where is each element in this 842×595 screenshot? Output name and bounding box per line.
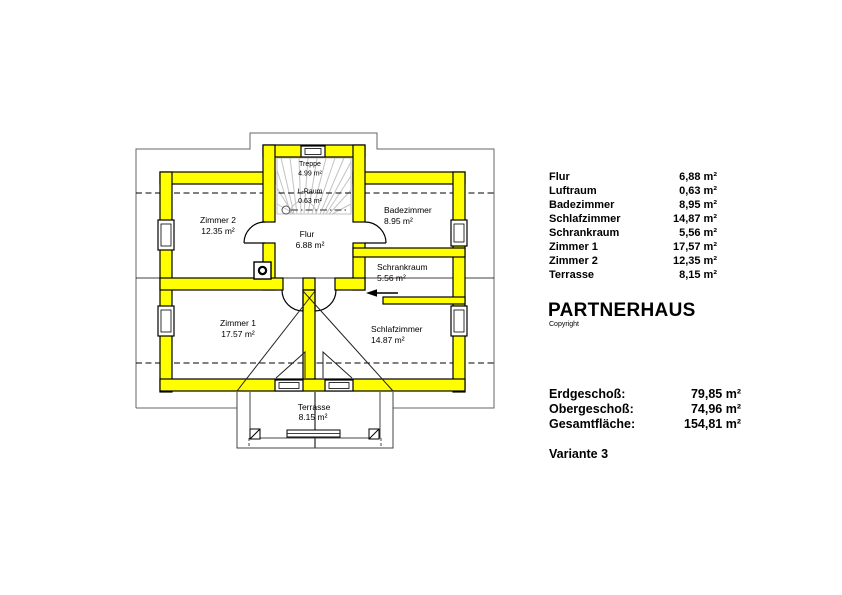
legend-label: Terrasse [549, 268, 594, 282]
wall [383, 297, 465, 304]
wall [303, 278, 315, 290]
wall [263, 145, 275, 222]
room-area-zimmer2: 12.35 m² [201, 226, 235, 236]
legend-value: 17,57 m² [673, 240, 717, 254]
room-label-zimmer2: Zimmer 2 [200, 215, 236, 225]
window-bottom-2 [325, 380, 353, 391]
terrace-railing [287, 430, 340, 437]
wall [160, 278, 283, 290]
room-label-flur: Flur [300, 229, 315, 239]
entry-arrow [366, 289, 398, 297]
legend-label: Schlafzimmer [549, 212, 621, 226]
legend-value: 8,95 m² [679, 198, 717, 212]
room-label-terrasse: Terrasse [298, 402, 331, 412]
total-label: Obergeschoß: [549, 402, 634, 417]
room-area-terrasse: 8.15 m² [299, 412, 328, 422]
total-label: Erdgeschoß: [549, 387, 625, 402]
window-dormer [301, 146, 325, 157]
copyright-note: Copyright [549, 321, 579, 328]
room-area-flur: 6.88 m² [296, 240, 325, 250]
total-label: Gesamtfläche: [549, 417, 635, 432]
slope-triangle-right [323, 352, 352, 378]
room-label-schlafzimmer: Schlafzimmer [371, 324, 423, 334]
total-value: 154,81 m² [684, 417, 741, 432]
room-label-treppe: Treppe [299, 161, 321, 168]
legend-label: Luftraum [549, 184, 597, 198]
room-area-lraum: 0.63 m² [298, 198, 322, 205]
legend-row: Zimmer 2 12,35 m² [549, 254, 717, 268]
room-label-schrankraum: Schrankraum [377, 262, 428, 272]
room-area-zimmer1: 17.57 m² [221, 329, 255, 339]
window-left-1 [158, 220, 174, 250]
legend-label: Badezimmer [549, 198, 614, 212]
outlet-symbol [254, 262, 271, 279]
legend-label: Schrankraum [549, 226, 619, 240]
room-area-badezimmer: 8.95 m² [384, 216, 413, 226]
wall [160, 172, 275, 184]
legend-label: Zimmer 1 [549, 240, 598, 254]
legend-row: Zimmer 1 17,57 m² [549, 240, 717, 254]
terrace-post-left [250, 429, 260, 439]
room-label-lraum: L-Raum [298, 189, 323, 196]
wall [160, 379, 465, 391]
terrace-post-right [369, 429, 379, 439]
variant-label: Variante 3 [549, 447, 608, 461]
legend-value: 8,15 m² [679, 268, 717, 282]
room-label-zimmer1: Zimmer 1 [220, 318, 256, 328]
total-row: Gesamtfläche: 154,81 m² [549, 417, 741, 432]
wall [353, 248, 465, 257]
legend-row: Luftraum 0,63 m² [549, 184, 717, 198]
total-value: 74,96 m² [691, 402, 741, 417]
slope-triangle-left [276, 352, 305, 378]
wall [453, 172, 465, 392]
legend-value: 5,56 m² [679, 226, 717, 240]
legend-value: 12,35 m² [673, 254, 717, 268]
legend-label: Zimmer 2 [549, 254, 598, 268]
room-area-schlafzimmer: 14.87 m² [371, 335, 405, 345]
floor-plan-drawing: Treppe 4.99 m² L-Raum 0.63 m² Zimmer 2 1… [0, 0, 842, 595]
window-right-2 [451, 306, 467, 336]
window-right-1 [451, 220, 467, 246]
window-bottom-1 [275, 380, 303, 391]
wall [353, 172, 465, 184]
legend-row: Schrankraum 5,56 m² [549, 226, 717, 240]
legend-value: 14,87 m² [673, 212, 717, 226]
legend-value: 6,88 m² [679, 170, 717, 184]
door-badezimmer [365, 222, 386, 243]
legend-row: Badezimmer 8,95 m² [549, 198, 717, 212]
wall [353, 145, 365, 222]
room-area-schrankraum: 5.56 m² [377, 273, 406, 283]
legend-row: Schlafzimmer 14,87 m² [549, 212, 717, 226]
legend-row: Flur 6,88 m² [549, 170, 717, 184]
total-value: 79,85 m² [691, 387, 741, 402]
floorplan-page: Treppe 4.99 m² L-Raum 0.63 m² Zimmer 2 1… [0, 0, 842, 595]
project-title: PARTNERHAUS [548, 300, 696, 322]
legend-label: Flur [549, 170, 570, 184]
room-area-treppe: 4.99 m² [298, 171, 322, 178]
door-zimmer1 [282, 290, 303, 311]
window-left-2 [158, 306, 174, 336]
total-row: Erdgeschoß: 79,85 m² [549, 387, 741, 402]
legend-row: Terrasse 8,15 m² [549, 268, 717, 282]
room-label-badezimmer: Badezimmer [384, 205, 432, 215]
total-row: Obergeschoß: 74,96 m² [549, 402, 741, 417]
legend-value: 0,63 m² [679, 184, 717, 198]
door-zimmer2 [244, 222, 265, 243]
wall [335, 278, 365, 290]
